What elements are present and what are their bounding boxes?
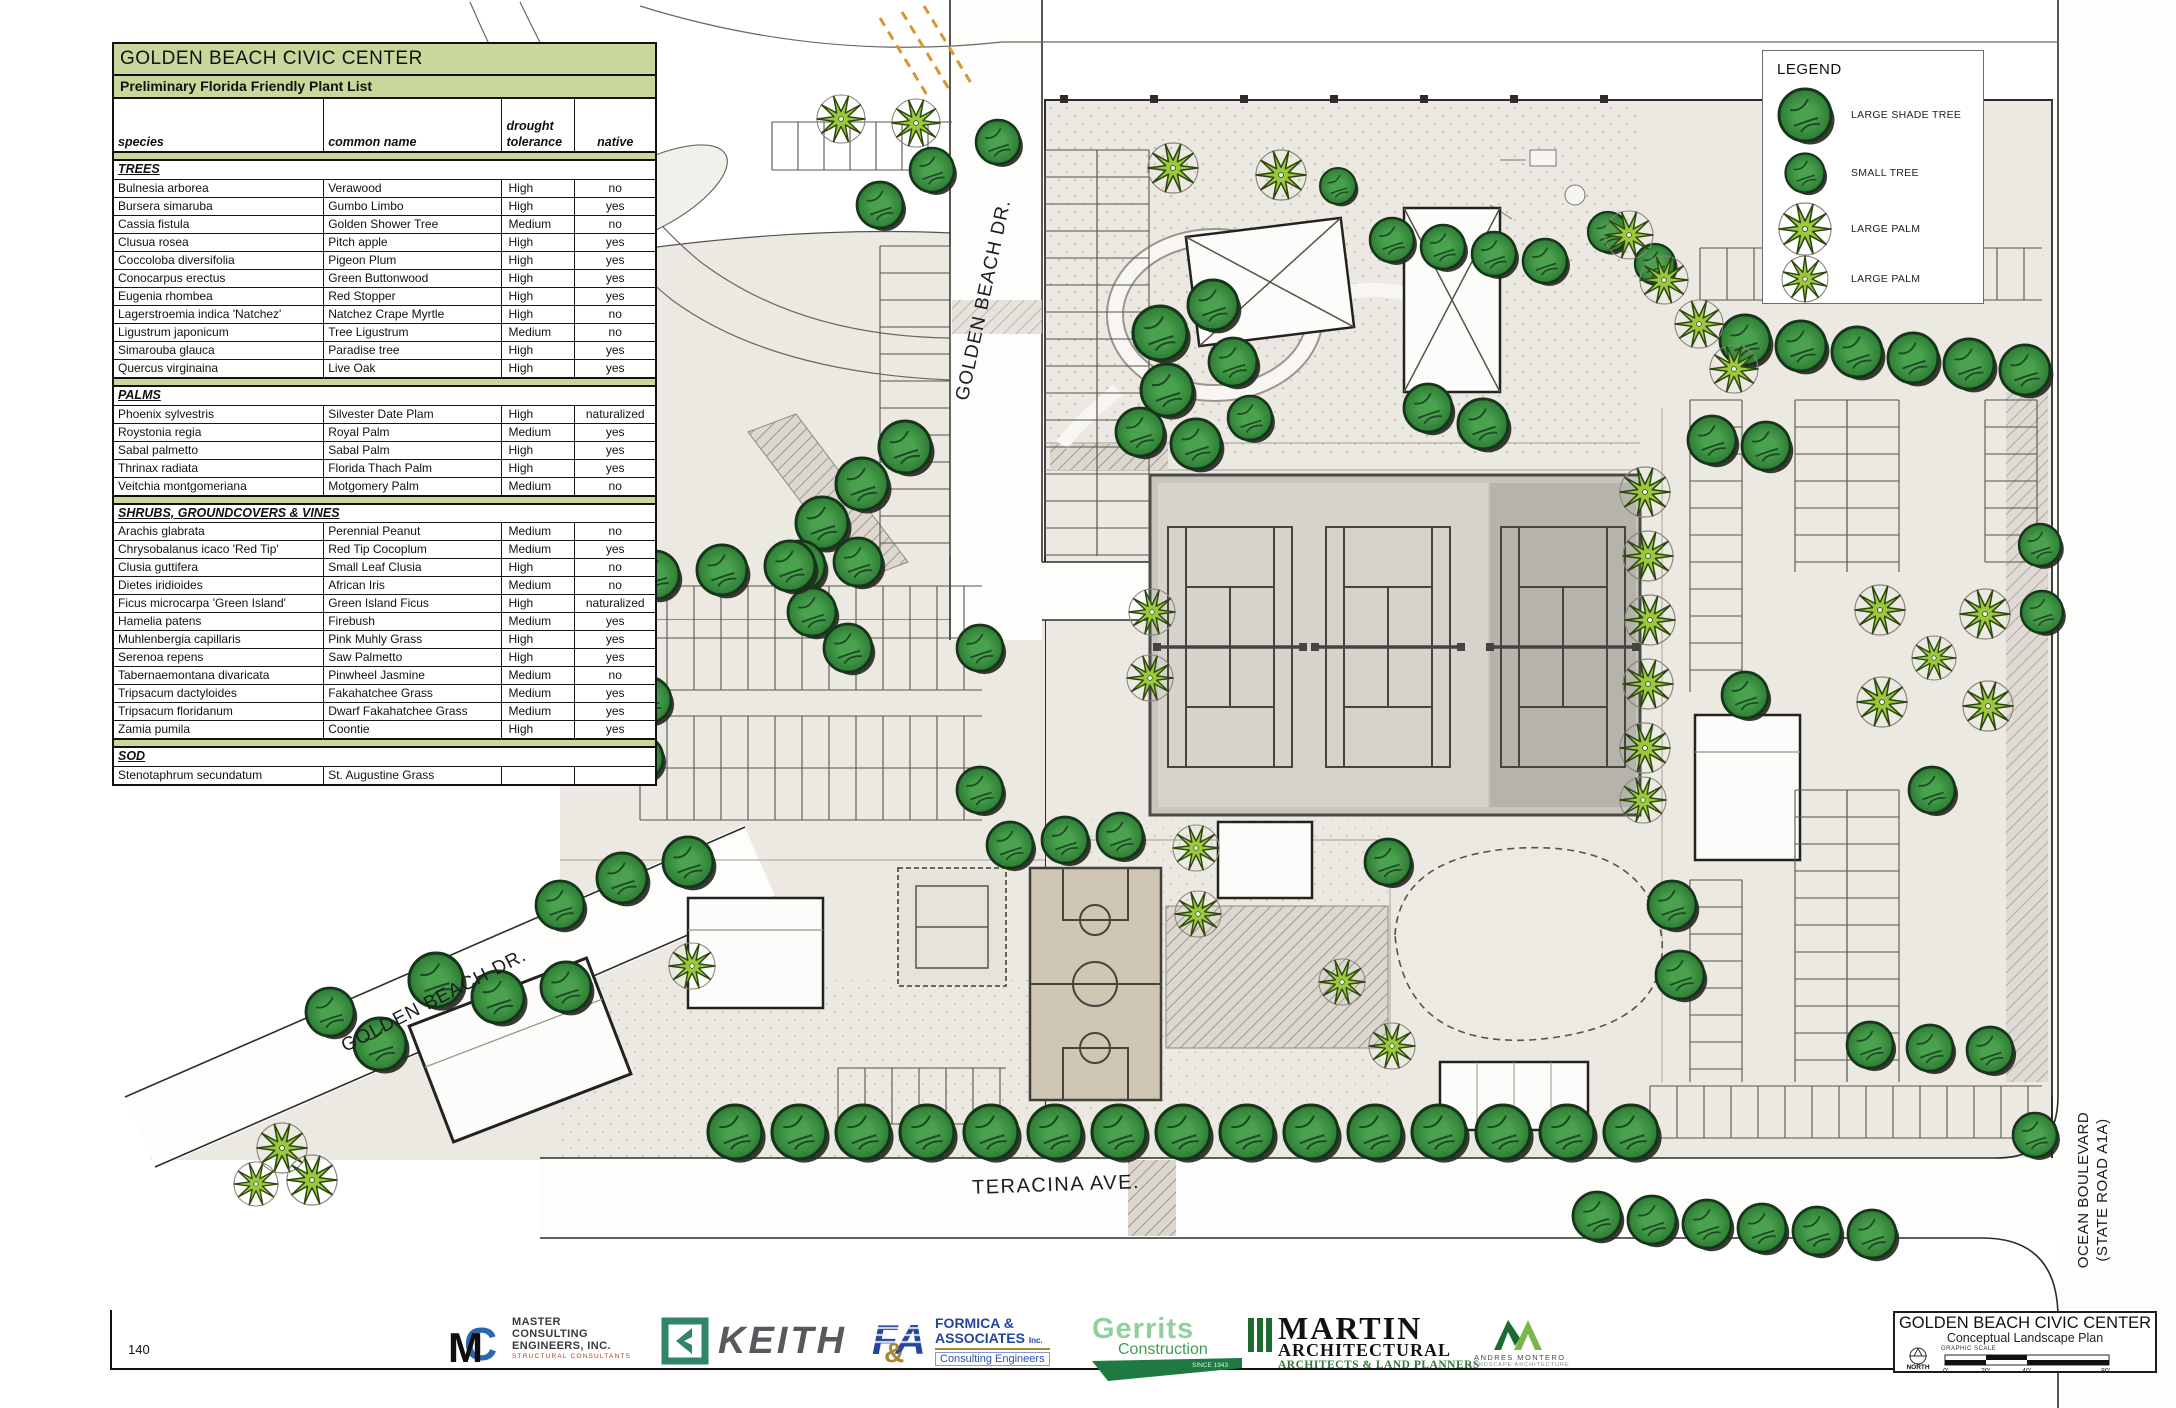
native-cell: yes <box>575 649 656 667</box>
native-cell: no <box>575 667 656 685</box>
drought-tolerance-cell: High <box>502 269 575 287</box>
common-name-cell: Pink Muhly Grass <box>324 631 502 649</box>
section-name-cell: SHRUBS, GROUNDCOVERS & VINES <box>113 504 656 523</box>
section-separator <box>113 739 656 747</box>
plant-row: Muhlenbergia capillarisPink Muhly GrassH… <box>113 631 656 649</box>
logo-text: ARCHITECTURAL <box>1278 1342 1480 1359</box>
logo-keith: KEITH <box>660 1316 847 1366</box>
native-cell: yes <box>575 703 656 721</box>
common-name-cell: Verawood <box>324 179 502 197</box>
plant-row: Roystonia regiaRoyal PalmMediumyes <box>113 423 656 441</box>
common-name-cell: Green Buttonwood <box>324 269 502 287</box>
species-cell: Eugenia rhombea <box>113 287 324 305</box>
section-separator <box>113 378 656 386</box>
native-cell: yes <box>575 685 656 703</box>
native-cell: yes <box>575 459 656 477</box>
drought-tolerance-cell: High <box>502 179 575 197</box>
north-label: NORTH <box>1906 1364 1929 1371</box>
drought-tolerance-cell: Medium <box>502 685 575 703</box>
legend-item-large-shade-tree: LARGE SHADE TREE <box>1773 85 1961 145</box>
drought-tolerance-cell: High <box>502 559 575 577</box>
plant-row: Thrinax radiataFlorida Thach PalmHighyes <box>113 459 656 477</box>
species-cell: Bulnesia arborea <box>113 179 324 197</box>
common-name-cell: Pitch apple <box>324 233 502 251</box>
species-cell: Thrinax radiata <box>113 459 324 477</box>
logo-tagline: Consulting Engineers <box>935 1352 1050 1366</box>
large-palm-icon <box>1773 253 1837 305</box>
section-name-cell: PALMS <box>113 386 656 405</box>
drought-tolerance-cell: High <box>502 197 575 215</box>
plant-row: Veitchia montgomerianaMotgomery PalmMedi… <box>113 477 656 496</box>
shade-tree <box>857 182 906 231</box>
section-header-row: SOD <box>113 747 656 766</box>
svg-text:&: & <box>884 1337 904 1364</box>
native-cell: yes <box>575 541 656 559</box>
logo-text: ANDRES MONTERO <box>1474 1353 1565 1362</box>
logo-text: ASSOCIATES Inc. <box>935 1331 1050 1350</box>
drought-tolerance-cell: High <box>502 405 575 423</box>
ocean-blvd-line2: (STATE ROAD A1A) <box>2093 1068 2112 1312</box>
drought-tolerance-cell: Medium <box>502 613 575 631</box>
common-name-cell: Royal Palm <box>324 423 502 441</box>
plant-row: Cassia fistulaGolden Shower TreeMediumno <box>113 215 656 233</box>
drought-tolerance-cell: High <box>502 649 575 667</box>
species-cell: Stenotaphrum secundatum <box>113 766 324 785</box>
plant-list-panel: GOLDEN BEACH CIVIC CENTER Preliminary Fl… <box>112 42 657 786</box>
plant-row: Stenotaphrum secundatumSt. Augustine Gra… <box>113 766 656 785</box>
north-arrow-icon <box>1905 1346 1931 1366</box>
common-name-cell: Red Stopper <box>324 287 502 305</box>
legend-item-small-tree: SMALL TREE <box>1773 149 1919 197</box>
legend-label: LARGE SHADE TREE <box>1851 109 1961 121</box>
drought-tolerance-cell <box>502 766 575 785</box>
common-name-cell: Perennial Peanut <box>324 523 502 541</box>
drought-tolerance-cell: High <box>502 359 575 378</box>
common-name-cell: Live Oak <box>324 359 502 378</box>
drought-tolerance-cell: Medium <box>502 577 575 595</box>
svg-text:0': 0' <box>1943 1368 1948 1374</box>
plant-row: Clusua roseaPitch appleHighyes <box>113 233 656 251</box>
common-name-cell: Sabal Palm <box>324 441 502 459</box>
plant-row: Tripsacum dactyloidesFakahatchee GrassMe… <box>113 685 656 703</box>
col-header-species: species <box>113 98 324 152</box>
logo-text: MARTIN <box>1278 1314 1480 1342</box>
plant-row: Serenoa repensSaw PalmettoHighyes <box>113 649 656 667</box>
native-cell: yes <box>575 341 656 359</box>
species-cell: Tripsacum floridanum <box>113 703 324 721</box>
logo-text: CONSULTING <box>512 1328 631 1340</box>
native-cell: yes <box>575 441 656 459</box>
species-cell: Arachis glabrata <box>113 523 324 541</box>
native-cell: no <box>575 179 656 197</box>
plant-row: Lagerstroemia indica 'Natchez'Natchez Cr… <box>113 305 656 323</box>
plant-row: Quercus virginainaLive OakHighyes <box>113 359 656 378</box>
drought-tolerance-cell: High <box>502 287 575 305</box>
common-name-cell: Tree Ligustrum <box>324 323 502 341</box>
plan-sheet: GOLDEN BEACH DR. GOLDEN BEACH DR. TERACI… <box>0 0 2176 1408</box>
col-header-drought-tolerance: drought tolerance <box>502 98 575 152</box>
page-number: 140 <box>128 1342 150 1357</box>
large-shade-tree-icon <box>1773 85 1837 145</box>
palm-tree <box>892 99 940 147</box>
common-name-cell: Gumbo Limbo <box>324 197 502 215</box>
plant-row: Zamia pumilaCoontieHighyes <box>113 721 656 740</box>
section-header-row: SHRUBS, GROUNDCOVERS & VINES <box>113 504 656 523</box>
plant-row: Ficus microcarpa 'Green Island'Green Isl… <box>113 595 656 613</box>
logo-text: MASTER <box>512 1316 631 1328</box>
col-header-native: native <box>575 98 656 152</box>
large-palm-icon <box>1773 201 1837 257</box>
logo-gerrits: Gerrits Construction SINCE 1943 <box>1092 1316 1244 1382</box>
logo-text: KEITH <box>718 1320 847 1363</box>
species-cell: Lagerstroemia indica 'Natchez' <box>113 305 324 323</box>
section-separator <box>113 152 656 160</box>
legend-item-large-palm-2: LARGE PALM <box>1773 253 1920 305</box>
species-cell: Tabernaemontana divaricata <box>113 667 324 685</box>
common-name-cell: Golden Shower Tree <box>324 215 502 233</box>
native-cell: yes <box>575 251 656 269</box>
plant-row: Tabernaemontana divaricataPinwheel Jasmi… <box>113 667 656 685</box>
plant-list-table: GOLDEN BEACH CIVIC CENTER Preliminary Fl… <box>112 42 657 786</box>
species-cell: Simarouba glauca <box>113 341 324 359</box>
legend-item-large-palm: LARGE PALM <box>1773 201 1920 257</box>
drought-tolerance-cell: High <box>502 305 575 323</box>
species-cell: Sabal palmetto <box>113 441 324 459</box>
legend-title: LEGEND <box>1777 61 1983 78</box>
species-cell: Zamia pumila <box>113 721 324 740</box>
legend-panel: LEGEND LARGE SHADE TREE SMALL TREE LARGE… <box>1762 50 1984 304</box>
common-name-cell: Dwarf Fakahatchee Grass <box>324 703 502 721</box>
native-cell: yes <box>575 631 656 649</box>
ocean-blvd-line1: OCEAN BOULEVARD <box>2074 1068 2093 1312</box>
logo-tagline: LANDSCAPE ARCHITECTURE <box>1470 1362 1570 1368</box>
plant-row: Tripsacum floridanumDwarf Fakahatchee Gr… <box>113 703 656 721</box>
drought-tolerance-cell: Medium <box>502 541 575 559</box>
andres-montero-monogram-icon <box>1488 1316 1552 1352</box>
tennis-courts <box>1150 475 1640 815</box>
common-name-cell: St. Augustine Grass <box>324 766 502 785</box>
plant-row: Phoenix sylvestrisSilvester Date PlamHig… <box>113 405 656 423</box>
keith-k-icon <box>660 1316 710 1366</box>
col-header-common-name: common name <box>324 98 502 152</box>
drought-tolerance-cell: High <box>502 233 575 251</box>
formica-fa-icon: FA & <box>872 1316 930 1364</box>
species-cell: Clusia guttifera <box>113 559 324 577</box>
drought-tolerance-cell: Medium <box>502 477 575 496</box>
species-cell: Chrysobalanus icaco 'Red Tip' <box>113 541 324 559</box>
palm-tree <box>234 1162 278 1206</box>
native-cell: yes <box>575 287 656 305</box>
graphic-scale: GRAPHIC SCALE 0' 20' 40' 80' <box>1941 1346 2151 1379</box>
native-cell: no <box>575 559 656 577</box>
plant-row: Chrysobalanus icaco 'Red Tip'Red Tip Coc… <box>113 541 656 559</box>
species-cell: Bursera simaruba <box>113 197 324 215</box>
species-cell: Serenoa repens <box>113 649 324 667</box>
common-name-cell: Natchez Crape Myrtle <box>324 305 502 323</box>
common-name-cell: Firebush <box>324 613 502 631</box>
logo-formica: FA & FORMICA & ASSOCIATES Inc. Consultin… <box>872 1316 1050 1366</box>
plant-list-title: GOLDEN BEACH CIVIC CENTER <box>113 43 656 75</box>
plant-row: Ligustrum japonicumTree LigustrumMediumn… <box>113 323 656 341</box>
master-consulting-monogram-icon: C M <box>448 1316 506 1368</box>
svg-text:M: M <box>448 1324 483 1368</box>
drought-tolerance-cell: High <box>502 251 575 269</box>
logo-text: Construction <box>1118 1342 1244 1358</box>
legend-label: LARGE PALM <box>1851 223 1920 235</box>
drought-tolerance-cell: High <box>502 341 575 359</box>
section-name: PALMS <box>118 388 161 402</box>
logo-tagline: ARCHITECTS & LAND PLANNERS <box>1278 1359 1480 1371</box>
plant-row: Bursera simarubaGumbo LimboHighyes <box>113 197 656 215</box>
species-cell: Muhlenbergia capillaris <box>113 631 324 649</box>
logo-text: ENGINEERS, INC. <box>512 1340 631 1352</box>
sheet-title: GOLDEN BEACH CIVIC CENTER <box>1895 1314 2155 1332</box>
drought-tolerance-cell: Medium <box>502 323 575 341</box>
common-name-cell: Silvester Date Plam <box>324 405 502 423</box>
common-name-cell: Red Tip Cocoplum <box>324 541 502 559</box>
section-header-row: PALMS <box>113 386 656 405</box>
plant-row: Coccoloba diversifoliaPigeon PlumHighyes <box>113 251 656 269</box>
native-cell: yes <box>575 721 656 740</box>
gerrits-swoosh-icon: SINCE 1943 <box>1092 1358 1244 1382</box>
title-block: GOLDEN BEACH CIVIC CENTER Conceptual Lan… <box>1893 1311 2157 1373</box>
palm-tree <box>287 1155 337 1205</box>
section-name-cell: TREES <box>113 160 656 179</box>
logo-martin: MARTIN ARCHITECTURAL ARCHITECTS & LAND P… <box>1248 1314 1480 1371</box>
martin-bars-icon <box>1248 1318 1274 1356</box>
native-cell: yes <box>575 233 656 251</box>
plant-row: Bulnesia arboreaVerawoodHighno <box>113 179 656 197</box>
species-cell: Veitchia montgomeriana <box>113 477 324 496</box>
species-cell: Roystonia regia <box>113 423 324 441</box>
sheet-subtitle: Conceptual Landscape Plan <box>1895 1332 2155 1345</box>
street-label-ocean-boulevard: OCEAN BOULEVARD (STATE ROAD A1A) <box>2074 1068 2112 1312</box>
drought-tolerance-cell: Medium <box>502 667 575 685</box>
palm-tree <box>817 95 865 143</box>
legend-label: LARGE PALM <box>1851 273 1920 285</box>
svg-text:80': 80' <box>2101 1368 2110 1374</box>
scale-bar: 0' 20' 40' 80' <box>1941 1352 2117 1374</box>
drought-tolerance-cell: Medium <box>502 423 575 441</box>
plant-row: Sabal palmettoSabal PalmHighyes <box>113 441 656 459</box>
common-name-cell: Motgomery Palm <box>324 477 502 496</box>
plant-row: Conocarpus erectusGreen ButtonwoodHighye… <box>113 269 656 287</box>
native-cell <box>575 766 656 785</box>
species-cell: Tripsacum dactyloides <box>113 685 324 703</box>
species-cell: Coccoloba diversifolia <box>113 251 324 269</box>
species-cell: Hamelia patens <box>113 613 324 631</box>
native-cell: no <box>575 577 656 595</box>
native-cell: naturalized <box>575 595 656 613</box>
species-cell: Ligustrum japonicum <box>113 323 324 341</box>
basketball-court <box>1030 868 1161 1100</box>
logo-text: FORMICA & <box>935 1316 1050 1331</box>
common-name-cell: Saw Palmetto <box>324 649 502 667</box>
section-name-cell: SOD <box>113 747 656 766</box>
svg-text:40': 40' <box>2022 1368 2031 1374</box>
common-name-cell: Paradise tree <box>324 341 502 359</box>
native-cell: naturalized <box>575 405 656 423</box>
drought-tolerance-cell: High <box>502 595 575 613</box>
drought-tolerance-cell: High <box>502 721 575 740</box>
common-name-cell: African Iris <box>324 577 502 595</box>
common-name-cell: Small Leaf Clusia <box>324 559 502 577</box>
legend-label: SMALL TREE <box>1851 167 1919 179</box>
species-cell: Quercus virginaina <box>113 359 324 378</box>
species-cell: Cassia fistula <box>113 215 324 233</box>
native-cell: yes <box>575 613 656 631</box>
plant-row: Arachis glabrataPerennial PeanutMediumno <box>113 523 656 541</box>
plant-row: Hamelia patensFirebushMediumyes <box>113 613 656 631</box>
lawn-area <box>1395 848 1662 1041</box>
common-name-cell: Pigeon Plum <box>324 251 502 269</box>
native-cell: no <box>575 323 656 341</box>
common-name-cell: Pinwheel Jasmine <box>324 667 502 685</box>
plant-row: Simarouba glaucaParadise treeHighyes <box>113 341 656 359</box>
common-name-cell: Green Island Ficus <box>324 595 502 613</box>
section-header-row: TREES <box>113 160 656 179</box>
logo-tagline: STRUCTURAL CONSULTANTS <box>512 1353 631 1360</box>
logo-master-consulting: C M MASTER CONSULTING ENGINEERS, INC. ST… <box>448 1316 631 1368</box>
drought-tolerance-cell: High <box>502 631 575 649</box>
svg-text:SINCE 1943: SINCE 1943 <box>1192 1362 1229 1369</box>
native-cell: no <box>575 215 656 233</box>
species-cell: Ficus microcarpa 'Green Island' <box>113 595 324 613</box>
svg-text:20': 20' <box>1981 1368 1990 1374</box>
drought-tolerance-cell: Medium <box>502 703 575 721</box>
plant-row: Eugenia rhombeaRed StopperHighyes <box>113 287 656 305</box>
species-cell: Dietes iridioides <box>113 577 324 595</box>
native-cell: no <box>575 477 656 496</box>
plant-list-subtitle: Preliminary Florida Friendly Plant List <box>113 75 656 99</box>
common-name-cell: Fakahatchee Grass <box>324 685 502 703</box>
native-cell: yes <box>575 423 656 441</box>
drought-tolerance-cell: High <box>502 441 575 459</box>
species-cell: Phoenix sylvestris <box>113 405 324 423</box>
north-arrow: NORTH <box>1901 1346 1935 1371</box>
native-cell: yes <box>575 359 656 378</box>
drought-tolerance-cell: High <box>502 459 575 477</box>
native-cell: no <box>575 305 656 323</box>
section-separator <box>113 496 656 504</box>
logo-andres-montero: ANDRES MONTERO LANDSCAPE ARCHITECTURE <box>1470 1316 1570 1368</box>
native-cell: yes <box>575 197 656 215</box>
plant-row: Dietes iridioidesAfrican IrisMediumno <box>113 577 656 595</box>
plant-row: Clusia guttiferaSmall Leaf ClusiaHighno <box>113 559 656 577</box>
section-name: SOD <box>118 749 145 763</box>
native-cell: yes <box>575 269 656 287</box>
common-name-cell: Coontie <box>324 721 502 740</box>
drought-tolerance-cell: Medium <box>502 215 575 233</box>
logo-text: Gerrits <box>1092 1316 1244 1342</box>
species-cell: Conocarpus erectus <box>113 269 324 287</box>
section-name: TREES <box>118 162 160 176</box>
native-cell: no <box>575 523 656 541</box>
species-cell: Clusua rosea <box>113 233 324 251</box>
volleyball-court <box>898 868 1006 986</box>
drought-tolerance-cell: Medium <box>502 523 575 541</box>
small-tree-icon <box>1773 149 1837 197</box>
section-name: SHRUBS, GROUNDCOVERS & VINES <box>118 506 340 520</box>
common-name-cell: Florida Thach Palm <box>324 459 502 477</box>
